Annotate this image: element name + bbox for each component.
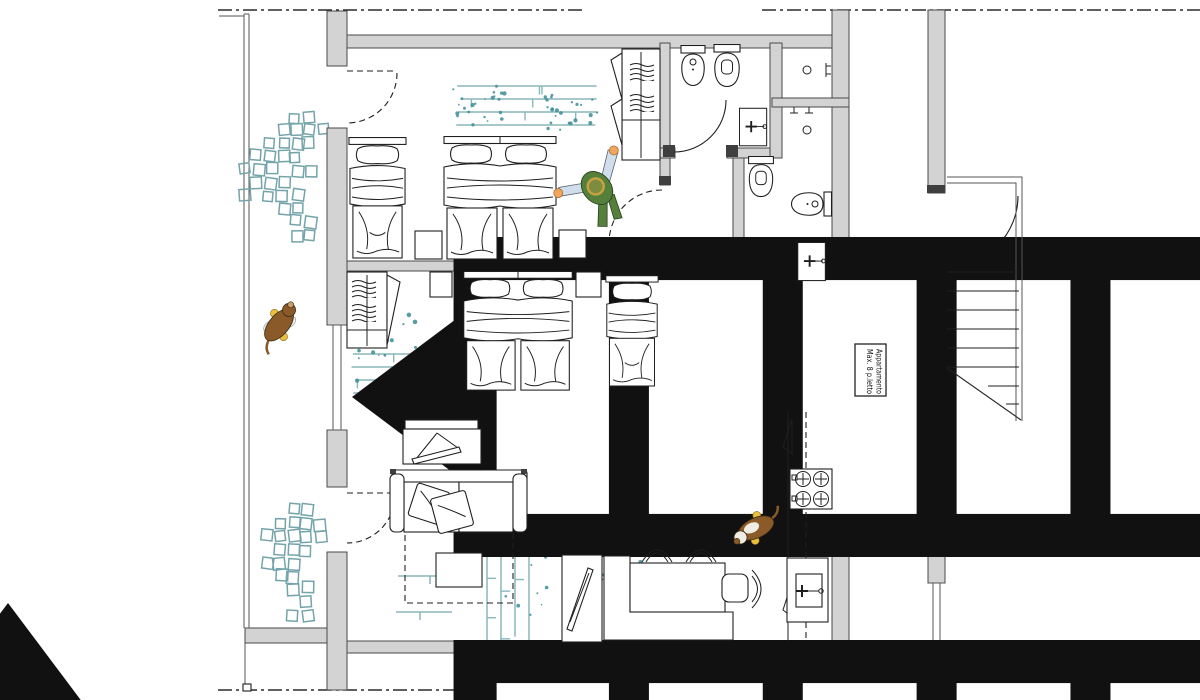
pebble (279, 138, 289, 148)
floor-speckle (484, 98, 486, 100)
bathroom-1 (681, 45, 767, 146)
pebble (300, 546, 311, 557)
pebble (302, 581, 314, 593)
pebble (291, 124, 303, 136)
pebble (292, 188, 305, 201)
pebble (303, 111, 315, 123)
pebble (288, 544, 299, 555)
pebble-decor-top (239, 111, 329, 241)
floor-speckle (516, 604, 520, 608)
floor-speckle (571, 101, 573, 103)
pebble (253, 164, 265, 176)
apartment-label: Appartamento Max. 8 p.letto (855, 344, 886, 396)
wall-left (327, 128, 347, 325)
wardrobe-door-open (611, 53, 622, 99)
pebble (292, 165, 304, 177)
railing-post (243, 684, 251, 691)
pebble (239, 163, 250, 174)
floor-speckle (390, 338, 394, 342)
washbasin (739, 108, 766, 146)
wall-corridor (660, 43, 670, 185)
floor-speckle (463, 107, 466, 110)
floor-plan-drawing: Appartamento Max. 8 p.letto (0, 0, 1200, 700)
floor-speckle (529, 614, 531, 616)
floor-speckle (358, 357, 360, 359)
pebble (279, 203, 291, 215)
nightstand (430, 272, 452, 297)
door-swing-bath1 (674, 100, 726, 152)
floor-speckle (471, 103, 475, 107)
floor-speckle (414, 346, 417, 349)
floor-speckle (544, 95, 547, 98)
floor-speckle (502, 91, 506, 95)
floor-speckle (493, 95, 495, 97)
label-line-1: Appartamento (875, 349, 884, 394)
pebble (288, 529, 301, 542)
floor-speckle (596, 112, 598, 114)
floor-speckle (588, 121, 592, 125)
pebble (250, 149, 261, 160)
floor-speckle (559, 111, 563, 115)
floor-speckle (546, 127, 549, 130)
floor-speckle (589, 113, 593, 117)
floor-speckle (402, 323, 404, 325)
chair (722, 570, 761, 608)
window-left-wall (328, 325, 346, 430)
armrest (390, 474, 404, 532)
pebble (306, 166, 317, 177)
pebble (264, 177, 277, 190)
kitchen-sink (787, 558, 828, 622)
radiator (0, 603, 146, 700)
armrest (513, 474, 527, 532)
pebble (286, 610, 297, 621)
pebble (278, 124, 290, 136)
floor-speckle (559, 129, 561, 131)
floor-speckle (467, 111, 470, 114)
sofa (390, 469, 527, 534)
floor-speckle (555, 108, 559, 112)
floor-speckle (384, 354, 387, 357)
wardrobe (347, 272, 400, 348)
desk (403, 420, 481, 464)
wall-left (327, 11, 347, 66)
floor-speckle (357, 349, 361, 353)
bidet (681, 46, 705, 86)
wall-shower-divider (772, 98, 849, 107)
floor-speckle (550, 122, 553, 125)
toilet (714, 45, 740, 87)
floor-speckle (483, 116, 485, 118)
floor-speckle (456, 115, 459, 118)
pebble (292, 231, 303, 242)
single-bed (606, 276, 658, 386)
floor-speckle (573, 118, 577, 122)
radiator (352, 662, 1200, 700)
pebble (293, 203, 303, 213)
label-text: Appartamento Max. 8 p.letto (865, 349, 884, 396)
pebble (275, 519, 285, 529)
pebble (288, 559, 300, 571)
pebble (276, 190, 287, 201)
dining-table (630, 563, 725, 612)
pebble (302, 610, 314, 622)
pebble (300, 518, 312, 530)
pebble (304, 124, 315, 135)
dining-area (604, 550, 761, 640)
floor-speckle (499, 111, 502, 114)
pebble (275, 530, 286, 541)
door-swing-living-balcony (347, 495, 395, 543)
floor-speckle (487, 120, 489, 122)
stove (790, 469, 832, 509)
pebble (304, 216, 317, 229)
wall-stairwell (928, 10, 945, 193)
wall-left (327, 552, 347, 690)
floor-speckle (505, 595, 508, 598)
pebble (250, 177, 262, 189)
pebble (264, 150, 276, 162)
floor-speckle (541, 604, 543, 606)
pebble (289, 503, 300, 514)
pebble (263, 191, 273, 201)
floor-speckle (568, 122, 571, 125)
door-swing-bedroom1-balcony (347, 73, 397, 123)
pebble (289, 114, 299, 124)
balcony (239, 14, 329, 691)
pebble (315, 531, 327, 543)
floor-speckle (495, 85, 498, 88)
pebble (300, 596, 312, 608)
pebble (301, 503, 314, 516)
pebble (261, 529, 273, 541)
bidet (792, 192, 832, 216)
shower-controls (790, 107, 813, 113)
floor-speckle (378, 354, 380, 356)
shower-tap (826, 63, 831, 77)
wall-balcony (245, 628, 327, 643)
floor-speckle (580, 104, 582, 106)
wardrobe-door-open (387, 275, 400, 345)
floor-speckle (461, 97, 464, 100)
washbasin (798, 242, 826, 280)
floor-speckle (555, 115, 557, 117)
pebble (304, 230, 315, 241)
floor-speckle (371, 350, 375, 354)
pebble (274, 544, 286, 556)
single-bed (349, 138, 406, 258)
nightstand (576, 272, 601, 297)
shower-drain (803, 66, 811, 74)
floor-speckle (545, 586, 549, 590)
floor-speckle (413, 320, 418, 325)
pebble (267, 162, 278, 173)
wardrobe-door-open (611, 99, 622, 145)
wall-left (327, 430, 347, 487)
floor-speckle (498, 98, 501, 101)
floor-speckle (355, 379, 359, 383)
balcony-railing (244, 14, 249, 628)
pebble (279, 177, 290, 188)
tv-cabinet (562, 555, 602, 642)
floor-speckle (575, 103, 578, 106)
floor-speckle (458, 104, 460, 106)
floor-speckle (546, 106, 548, 108)
floor-plan-page: Appartamento Max. 8 p.letto (0, 0, 1200, 700)
floor-speckle (536, 592, 538, 594)
wardrobe (611, 49, 660, 160)
pebble (313, 519, 326, 532)
pebble (290, 214, 301, 225)
shower-drain (803, 126, 811, 134)
dog-figure-icon (249, 295, 307, 356)
nightstand (415, 231, 442, 259)
floor-speckle (493, 91, 496, 94)
floor-speckle (550, 108, 554, 112)
pebble (279, 150, 291, 162)
pebble (264, 138, 275, 149)
floor-speckle (591, 98, 593, 100)
toilet (749, 156, 774, 196)
floor-speckle (530, 564, 532, 566)
floor-speckle (550, 96, 553, 99)
floor-speckle (500, 117, 504, 121)
floor-speckle (407, 313, 412, 318)
nightstand (559, 230, 586, 258)
pebble (289, 517, 300, 528)
label-line-2: Max. 8 p.letto (865, 349, 874, 394)
floor-speckle (546, 98, 549, 101)
floor-speckle (471, 123, 474, 126)
pebble-decor-bottom (261, 503, 327, 622)
coffee-table (436, 553, 482, 587)
floor-speckle (452, 88, 454, 90)
pebble (287, 584, 299, 596)
